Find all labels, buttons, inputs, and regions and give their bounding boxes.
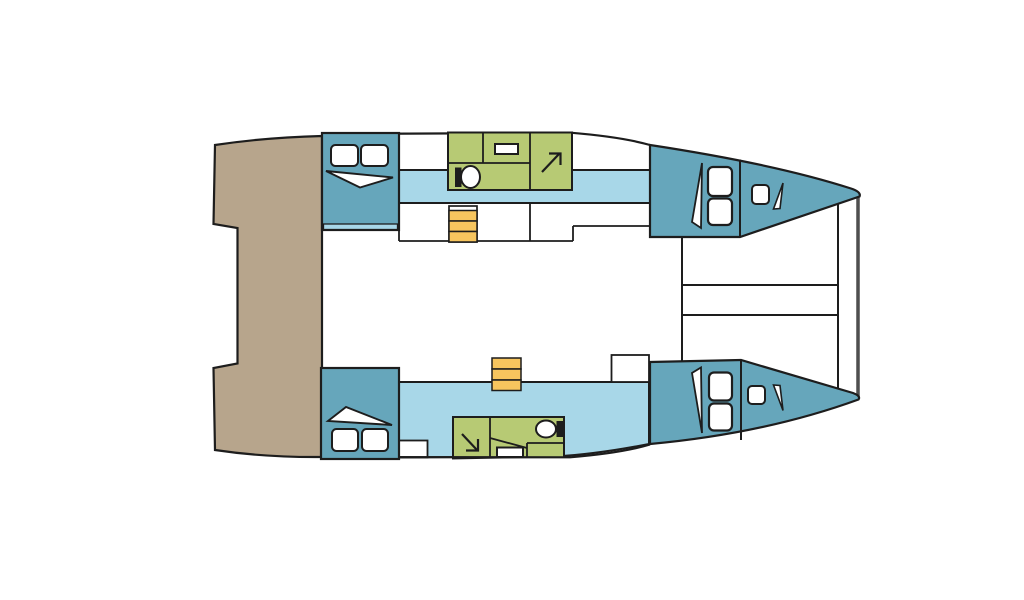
stairs-top-step-2 <box>449 221 477 232</box>
catamaran-deck-plan <box>0 0 1024 600</box>
cabin-bow-bottom-berth-1 <box>709 373 732 401</box>
cabin-bow-bottom-hatch <box>748 386 765 404</box>
toilet-bottom-tank <box>557 421 564 437</box>
cabin-bow-bottom-berth-2 <box>709 404 732 431</box>
stairs-bottom-step-1 <box>492 358 521 369</box>
stairs-bottom-step-2 <box>492 369 521 380</box>
cabin-aft-bottom-pillow-2 <box>362 429 388 451</box>
toilet-bottom-bowl <box>536 421 556 438</box>
toilet-top-bowl <box>461 166 480 188</box>
cabin-aft-top-step <box>324 224 398 230</box>
sink-top <box>495 144 518 154</box>
cabin-bow-top-berth-2 <box>708 199 732 226</box>
cabin-bow-top-berth-1 <box>708 167 732 196</box>
cabin-bow-top-hatch <box>752 185 769 204</box>
saloon-unit-bottom <box>612 355 650 382</box>
stairs-top-step-3 <box>449 232 477 243</box>
stern-platform <box>214 136 323 457</box>
stairs-bottom-step-3 <box>492 380 521 391</box>
sink-bottom <box>497 448 523 458</box>
screenshot-root <box>0 0 1024 600</box>
cabin-aft-bottom-pillow-1 <box>332 429 358 451</box>
stairs-top-step-1 <box>449 211 477 222</box>
cabin-aft-top-pillow-2 <box>361 145 388 166</box>
cabin-aft-top-pillow-1 <box>331 145 358 166</box>
locker-bottom <box>399 441 428 458</box>
